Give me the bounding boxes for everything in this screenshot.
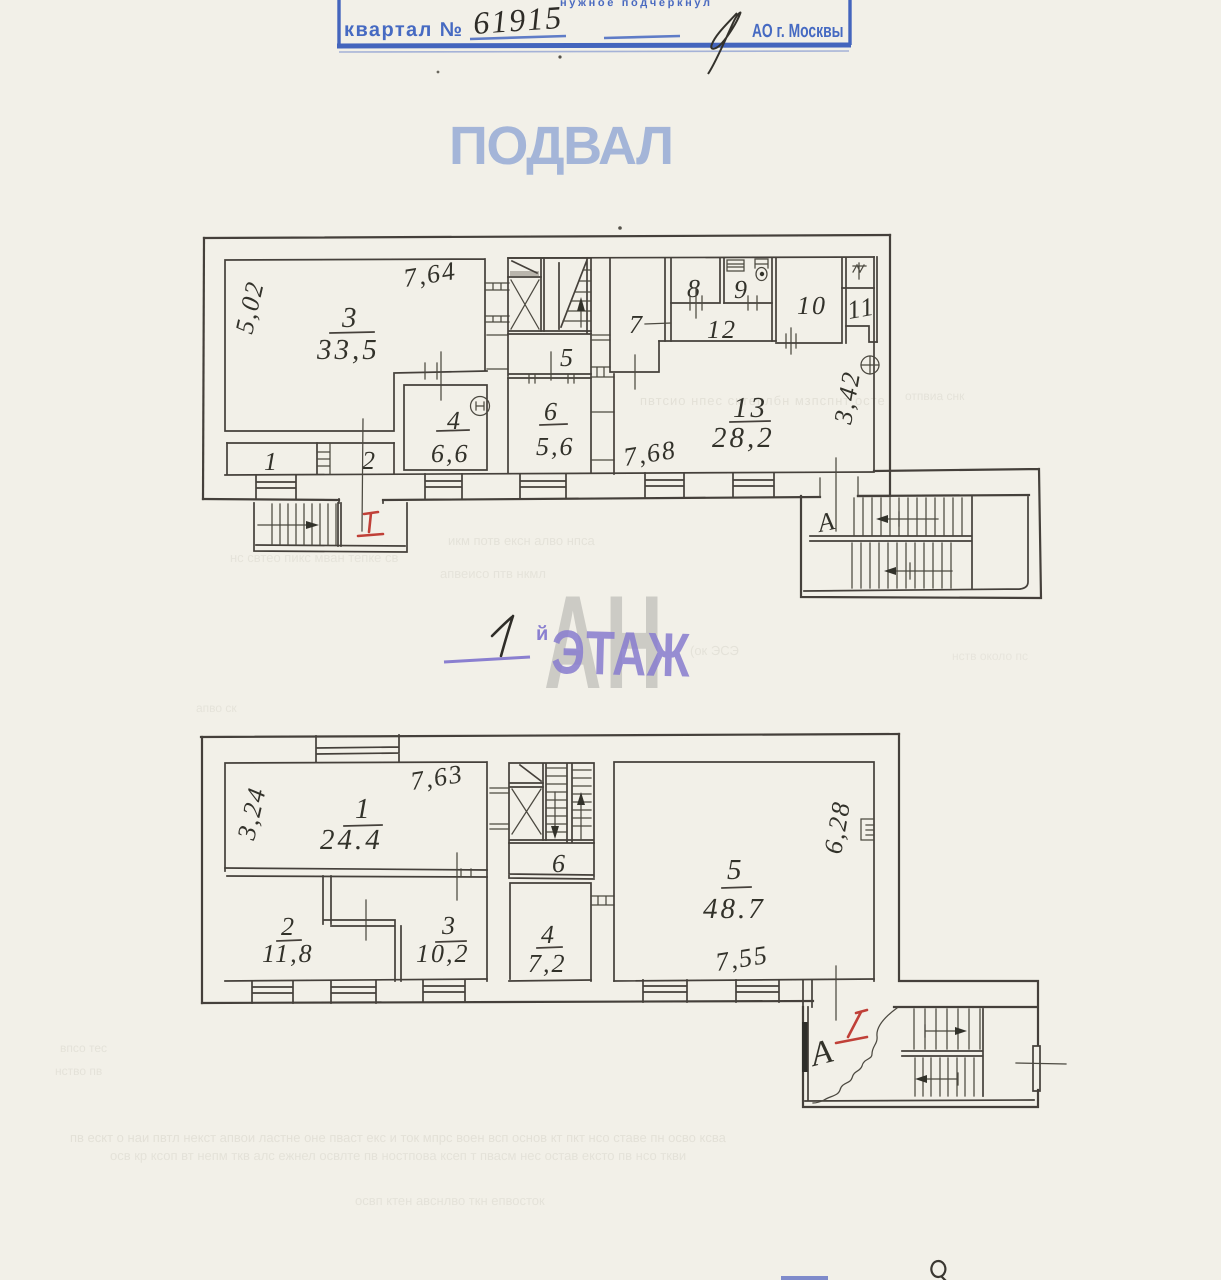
svg-text:2: 2 [281, 912, 296, 941]
svg-text:отпвиа снк: отпвиа снк [905, 389, 965, 403]
svg-text:24.4: 24.4 [320, 824, 383, 856]
svg-text:3: 3 [341, 302, 360, 334]
svg-text:13: 13 [733, 392, 768, 424]
svg-text:3: 3 [441, 911, 457, 940]
svg-text:7,2: 7,2 [528, 949, 567, 978]
svg-text:11,8: 11,8 [262, 939, 314, 968]
svg-text:10: 10 [797, 291, 827, 320]
svg-text:нств около пс: нств около пс [952, 649, 1028, 663]
svg-text:10,2: 10,2 [416, 939, 470, 968]
svg-text:6,6: 6,6 [431, 439, 470, 468]
svg-text:6: 6 [552, 849, 567, 878]
svg-text:ЭТАЖ: ЭТАЖ [551, 618, 692, 691]
svg-text:12: 12 [707, 315, 737, 344]
svg-text:61915: 61915 [472, 0, 564, 41]
svg-text:освп ктен авснлво ткн епвосток: освп ктен авснлво ткн епвосток [355, 1193, 545, 1208]
svg-text:28,2: 28,2 [712, 422, 775, 454]
svg-text:(ок ЭСЭ: (ок ЭСЭ [690, 643, 739, 658]
svg-text:33,5: 33,5 [316, 334, 380, 366]
svg-text:9: 9 [734, 275, 749, 304]
svg-text:8: 8 [687, 274, 702, 303]
svg-text:5: 5 [727, 854, 745, 886]
svg-text:апвеисо птв нкмл: апвеисо птв нкмл [440, 566, 546, 581]
svg-text:5,6: 5,6 [536, 432, 575, 461]
svg-text:осв кр ксоп вт непм ткв алс еж: осв кр ксоп вт непм ткв алс ежнел освлте… [110, 1148, 686, 1163]
svg-text:11: 11 [845, 291, 878, 324]
svg-text:6: 6 [544, 397, 559, 426]
svg-text:1: 1 [355, 793, 373, 825]
svg-text:квартал №: квартал № [344, 19, 462, 41]
svg-text:1: 1 [264, 447, 279, 476]
svg-text:апво ск: апво ск [196, 701, 237, 715]
svg-text:АО г. Москвы: АО г. Москвы [752, 21, 843, 42]
svg-text:нужное подчеркнул: нужное подчеркнул [560, 0, 710, 9]
svg-text:48.7: 48.7 [703, 893, 766, 925]
svg-text:7: 7 [629, 310, 644, 339]
svg-text:2: 2 [362, 446, 377, 475]
svg-text:ПОДВАЛ: ПОДВАЛ [449, 116, 683, 176]
svg-text:нство пв: нство пв [55, 1064, 102, 1078]
svg-text:5: 5 [560, 343, 575, 372]
svg-text:й: й [536, 623, 548, 645]
svg-text:икм потв ексн алво нпса: икм потв ексн алво нпса [448, 533, 595, 548]
svg-text:впсо тес: впсо тес [60, 1041, 107, 1055]
svg-text:4: 4 [541, 920, 556, 949]
svg-text:пв ескт о наи пвтл некст апвои: пв ескт о наи пвтл некст апвои ластне он… [70, 1130, 727, 1145]
